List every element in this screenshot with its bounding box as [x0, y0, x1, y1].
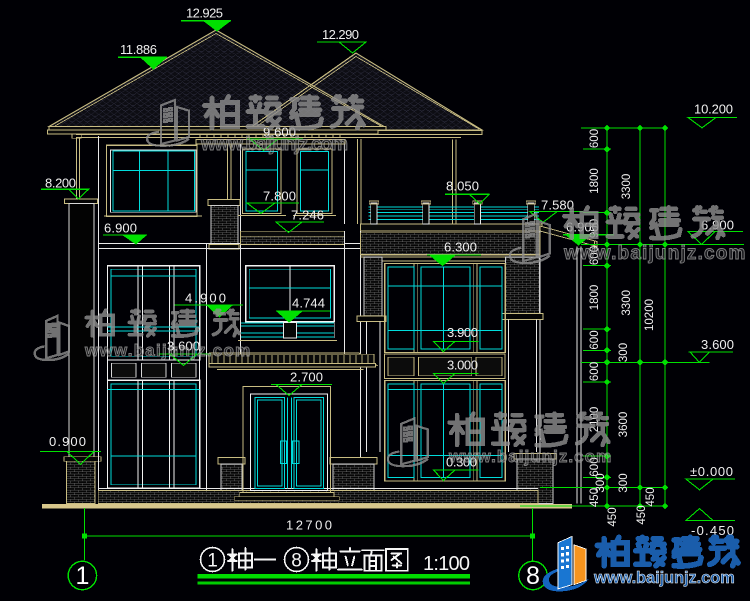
svg-text:6.300: 6.300 [444, 240, 477, 255]
svg-text:3300: 3300 [621, 290, 633, 316]
svg-text:600: 600 [589, 330, 601, 349]
svg-text:300: 300 [618, 473, 630, 492]
svg-text:7.246: 7.246 [291, 208, 324, 223]
svg-text:1: 1 [75, 562, 89, 590]
svg-text:4.744: 4.744 [292, 296, 325, 311]
svg-text:www.baijunjz.com: www.baijunjz.com [593, 569, 735, 587]
svg-text:12700: 12700 [286, 518, 332, 533]
svg-text:8: 8 [526, 562, 540, 590]
svg-text:600: 600 [589, 362, 601, 381]
svg-text:1: 1 [207, 551, 218, 572]
svg-text:www.baijunjz.com: www.baijunjz.com [448, 447, 612, 466]
svg-text:1:100: 1:100 [423, 553, 470, 575]
svg-text:7.800: 7.800 [263, 189, 296, 204]
svg-text:7.580: 7.580 [541, 198, 574, 213]
svg-text:450: 450 [636, 505, 648, 524]
svg-text:±0.000: ±0.000 [690, 464, 733, 479]
svg-text:www.baijunjz.com: www.baijunjz.com [200, 134, 349, 155]
svg-text:www.baijunjz.com: www.baijunjz.com [563, 243, 746, 264]
svg-text:600: 600 [589, 129, 601, 148]
svg-text:12.290: 12.290 [322, 27, 359, 42]
svg-text:1800: 1800 [589, 285, 601, 311]
svg-text:450: 450 [607, 507, 619, 526]
svg-text:3600: 3600 [618, 412, 630, 438]
svg-text:12.925: 12.925 [186, 6, 223, 21]
svg-text:3300: 3300 [621, 174, 633, 200]
svg-text:2.700: 2.700 [290, 370, 323, 385]
svg-text:4.900: 4.900 [185, 291, 226, 306]
svg-text:www.baijunjz.com: www.baijunjz.com [84, 341, 251, 360]
svg-text:450: 450 [589, 488, 601, 507]
svg-text:8.200: 8.200 [45, 176, 76, 191]
svg-text:8: 8 [291, 551, 302, 572]
svg-text:1800: 1800 [589, 168, 601, 194]
svg-text:450: 450 [645, 487, 657, 506]
svg-text:300: 300 [618, 343, 630, 362]
svg-text:3.600: 3.600 [701, 337, 734, 352]
svg-text:6.900: 6.900 [104, 221, 137, 236]
svg-text:10.200: 10.200 [694, 102, 733, 117]
svg-text:8.050: 8.050 [446, 179, 479, 194]
svg-text:10200: 10200 [644, 299, 656, 331]
svg-text:11.886: 11.886 [120, 42, 157, 57]
svg-text:3.900: 3.900 [447, 325, 478, 340]
svg-text:3.000: 3.000 [447, 358, 478, 373]
svg-text:0.900: 0.900 [49, 434, 86, 449]
